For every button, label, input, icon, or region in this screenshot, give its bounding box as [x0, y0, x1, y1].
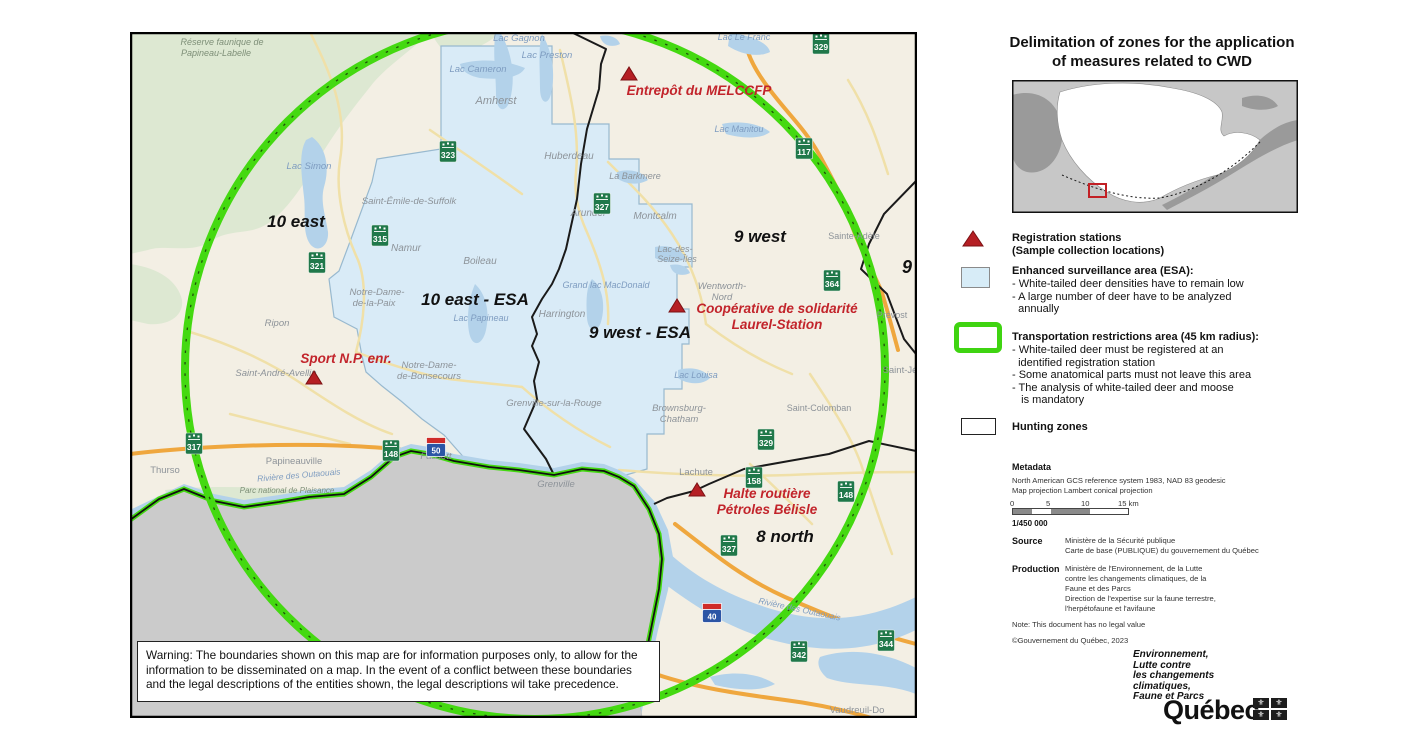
warning-box: Warning: The boundaries shown on this ma…: [137, 641, 660, 702]
source-line: Carte de base (PUBLIQUE) du gouvernement…: [1065, 546, 1259, 556]
town-label: Notre-Dame-: [402, 360, 457, 371]
station-label: Laurel-Station: [732, 317, 823, 332]
warning-line: and the legal descriptions of the entiti…: [146, 677, 651, 692]
town-label: Montcalm: [633, 211, 676, 222]
legend-transport-item: - White-tailed deer must be registered a…: [1012, 344, 1224, 357]
water-label: Lac Cameron: [449, 64, 506, 75]
town-label: Harrington: [539, 309, 586, 320]
inset-locator-map[interactable]: [1012, 80, 1298, 213]
fleur-de-lis-icon: ⚜: [1253, 710, 1269, 720]
scale-tick: 5: [1046, 499, 1050, 508]
water-label: Lac Manitou: [714, 124, 763, 134]
station-label: Entrepôt du MELCCFP: [627, 83, 773, 98]
production-line: Faune et des Parcs: [1065, 584, 1131, 594]
town-label: La Barkmere: [609, 171, 661, 181]
water-label: Lac Simon: [287, 161, 332, 172]
production-line: Direction de l'expertise sur la faune te…: [1065, 594, 1216, 604]
transport-restriction-swatch: [954, 322, 1002, 353]
route-shield-327: 327: [721, 535, 738, 556]
fleur-de-lis-icon: ⚜: [1271, 698, 1287, 708]
legend-transport-header: Transportation restrictions area (45 km …: [1012, 331, 1259, 344]
legend-esa-item: - A large number of deer have to be anal…: [1012, 291, 1232, 304]
town-label: Grenville: [537, 479, 575, 490]
route-shield-number: 364: [825, 279, 839, 289]
legend-transport-item: identified registration station: [1012, 357, 1155, 370]
warning-line: information to be disseminated on a map.…: [146, 663, 651, 678]
metadata-line: North American GCS reference system 1983…: [1012, 476, 1226, 486]
route-shield-344: 344: [878, 630, 895, 651]
route-shield-number: 327: [722, 544, 736, 554]
route-shield-321: 321: [309, 252, 326, 273]
hunting-zones-swatch: [961, 418, 996, 435]
scale-tick: 0: [1010, 499, 1014, 508]
legend-transport-item: - The analysis of white-tailed deer and …: [1012, 382, 1234, 395]
metadata-header: Metadata: [1012, 462, 1051, 472]
route-shield-342: 342: [791, 641, 808, 662]
town-label: Namur: [391, 243, 422, 254]
production-label: Production: [1012, 564, 1060, 574]
scale-ratio: 1/450 000: [1012, 519, 1048, 528]
legend-esa-item: - White-tailed deer densities have to re…: [1012, 278, 1244, 291]
page-title: Delimitation of zones for the applicatio…: [1003, 33, 1301, 71]
town-label: Wentworth-: [698, 281, 746, 292]
town-label: Sainte-Adèle: [828, 231, 880, 241]
route-shield-number: 327: [595, 202, 609, 212]
route-shield-number: 148: [839, 490, 853, 500]
hunting-zone-label: 9 west - ESA: [589, 323, 691, 342]
legend-transport-item: is mandatory: [1012, 394, 1084, 407]
scale-tick: 15 km: [1118, 499, 1139, 508]
reserve-label: Réserve faunique de: [180, 37, 263, 47]
route-shield-148: 148: [383, 440, 400, 461]
route-shield-364: 364: [824, 270, 841, 291]
copyright: ©Gouvernement du Québec, 2023: [1012, 636, 1128, 646]
warning-line: Warning: The boundaries shown on this ma…: [146, 648, 651, 663]
town-label: Saint-Émile-de-Suffolk: [362, 196, 458, 207]
route-shield-323: 323: [440, 141, 457, 162]
route-shield-329: 329: [758, 429, 775, 450]
route-shield-317: 317: [186, 433, 203, 454]
route-shield-number: 342: [792, 650, 806, 660]
scale-tick: 10: [1081, 499, 1089, 508]
town-label: Vaudreuil-Do: [830, 705, 885, 716]
town-label: Ripon: [265, 318, 290, 329]
water-label: Lac Papineau: [453, 313, 508, 323]
route-shield-number: 329: [759, 438, 773, 448]
station-label: Pétroles Bélisle: [717, 502, 818, 517]
metadata-line: Map projection Lambert conical projectio…: [1012, 486, 1153, 496]
town-label: Grenville-sur-la-Rouge: [506, 398, 601, 409]
autoroute-shield-number: 50: [432, 447, 441, 456]
route-shield-148: 148: [838, 481, 855, 502]
route-shield-158: 158: [746, 467, 763, 488]
autoroute-shield-50: 50: [427, 438, 446, 457]
route-shield-number: 315: [373, 234, 387, 244]
town-label: Lachute: [679, 467, 713, 478]
production-line: l'herpétofaune et l'avifaune: [1065, 604, 1155, 614]
route-shield-number: 344: [879, 639, 893, 649]
fleur-de-lis-icon: ⚜: [1253, 698, 1269, 708]
town-label: de-la-Paix: [353, 298, 397, 309]
water-label: Lac Louisa: [674, 370, 718, 380]
production-line: Ministère de l'Environnement, de la Lutt…: [1065, 564, 1202, 574]
main-map[interactable]: Réserve faunique dePapineau-LabelleParc …: [130, 32, 917, 718]
route-shield-number: 323: [441, 150, 455, 160]
town-label: Prévost: [877, 310, 908, 320]
legend-registration-label: Registration stations: [1012, 232, 1121, 245]
water-label: Lac Gagnon: [493, 33, 545, 44]
autoroute-shield-number: 40: [708, 613, 717, 622]
hunting-zone-label: 9 west: [734, 227, 787, 246]
town-label: Papineauville: [266, 456, 323, 467]
legend-transport-item: - Some anatomical parts must not leave t…: [1012, 369, 1251, 382]
route-shield-number: 329: [814, 42, 828, 52]
quebec-wordmark: Québec: [1163, 695, 1259, 726]
town-label: Thurso: [150, 465, 180, 476]
route-shield-number: 158: [747, 476, 761, 486]
legend-hunting-label: Hunting zones: [1012, 421, 1088, 434]
water-label: Lac Preston: [522, 50, 573, 61]
town-label: Huberdeau: [544, 151, 594, 162]
legend-registration-sublabel: (Sample collection locations): [1012, 245, 1164, 258]
town-label: Saint-Colomban: [787, 403, 852, 413]
source-line: Ministère de la Sécurité publique: [1065, 536, 1175, 546]
town-label: Seize-Îles: [657, 254, 697, 264]
town-label: Boileau: [463, 256, 497, 267]
production-line: contre les changements climatiques, de l…: [1065, 574, 1206, 584]
page: Réserve faunique dePapineau-LabelleParc …: [0, 0, 1427, 748]
route-shield-number: 148: [384, 449, 398, 459]
route-shield-number: 317: [187, 442, 201, 452]
legal-note: Note: This document has no legal value: [1012, 620, 1145, 630]
autoroute-shield-40: 40: [703, 604, 722, 623]
town-label: de-Bonsecours: [397, 371, 461, 382]
water-label: Grand lac MacDonald: [562, 280, 650, 290]
fleur-de-lis-icon: ⚜: [1271, 710, 1287, 720]
town-label: Lac-des-: [657, 244, 692, 254]
quebec-flag-icon: ⚜ ⚜ ⚜ ⚜: [1253, 698, 1287, 720]
esa-swatch: [961, 267, 990, 288]
town-label: Chatham: [660, 414, 699, 425]
registration-station-icon: [962, 230, 984, 247]
route-shield-number: 117: [797, 147, 811, 157]
station-label: Halte routière: [723, 486, 811, 501]
scale-bar: [1012, 508, 1129, 515]
station-label: Sport N.P. enr.: [300, 351, 391, 366]
legend-esa-header: Enhanced surveillance area (ESA):: [1012, 265, 1194, 278]
hunting-zone-label: 10 east: [267, 212, 326, 231]
town-label: Saint-André-Avellin: [235, 368, 316, 379]
hunting-zone-label: 8 north: [756, 527, 814, 546]
route-shield-315: 315: [372, 225, 389, 246]
station-label: Coopérative de solidarité: [696, 301, 858, 316]
town-label: Amherst: [475, 95, 518, 107]
source-label: Source: [1012, 536, 1043, 546]
legend-esa-item: annually: [1012, 303, 1059, 316]
route-shield-number: 321: [310, 261, 324, 271]
reserve-label: Parc national de Plaisance: [240, 486, 335, 495]
hunting-zone-label: 10 east - ESA: [421, 290, 529, 309]
reserve-label: Papineau-Labelle: [181, 48, 251, 58]
route-shield-329: 329: [813, 33, 830, 54]
route-shield-327: 327: [594, 193, 611, 214]
route-shield-117: 117: [796, 138, 813, 159]
town-label: Saint-Jé: [883, 365, 917, 376]
town-label: Brownsburg-: [652, 403, 706, 414]
logo-line: Environnement,: [1133, 650, 1209, 660]
town-label: Notre-Dame-: [350, 287, 405, 298]
hunting-zone-label: 9: [902, 257, 912, 277]
logo-line: les changements: [1133, 671, 1214, 681]
